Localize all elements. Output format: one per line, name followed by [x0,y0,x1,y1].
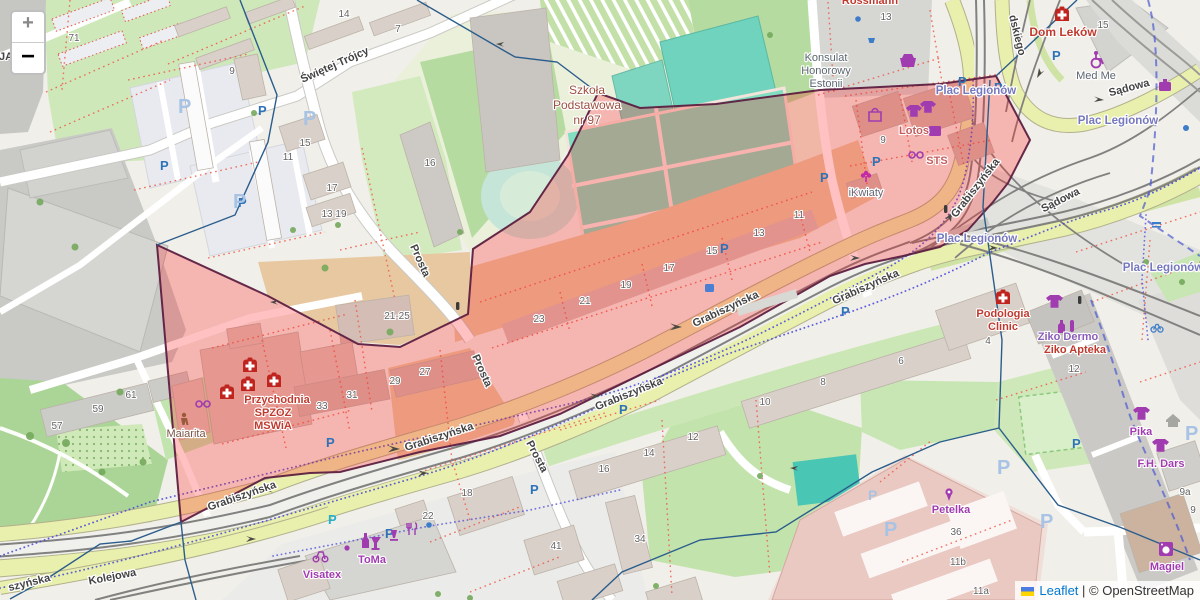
svg-text:F.H. Dars: F.H. Dars [1137,458,1184,470]
svg-text:P: P [1185,423,1198,445]
svg-text:Med Me: Med Me [1076,70,1116,82]
svg-text:Ziko Dermo: Ziko Dermo [1038,331,1099,343]
svg-text:Pika: Pika [1130,426,1154,438]
svg-text:P: P [820,170,829,185]
svg-text:13 19: 13 19 [321,209,346,220]
svg-text:Clinic: Clinic [988,321,1018,333]
svg-text:Magiel: Magiel [1150,561,1184,573]
svg-text:27: 27 [419,367,431,378]
svg-text:15: 15 [1097,20,1109,31]
svg-text:11: 11 [283,152,294,163]
svg-text:P: P [619,402,628,417]
svg-text:MSWiA: MSWiA [254,420,292,432]
svg-text:P: P [872,154,881,169]
svg-text:SPZOZ: SPZOZ [255,407,292,419]
svg-text:P: P [303,108,316,130]
svg-text:P: P [1052,48,1061,63]
svg-text:P: P [178,96,191,118]
svg-text:22: 22 [422,511,434,522]
svg-text:iKwiaty: iKwiaty [849,187,884,199]
svg-text:P: P [258,103,267,118]
svg-text:7: 7 [395,24,401,35]
svg-text:36: 36 [950,527,962,538]
svg-text:33: 33 [316,401,328,412]
svg-text:11b: 11b [950,557,966,568]
svg-text:P: P [720,241,729,256]
svg-text:Plac Legionów: Plac Legionów [1078,115,1159,127]
svg-text:Estonii: Estonii [809,78,842,90]
svg-text:23: 23 [533,314,545,325]
svg-text:11a: 11a [973,586,989,597]
svg-text:29: 29 [389,376,401,387]
svg-text:17: 17 [326,183,338,194]
svg-text:16: 16 [424,158,436,169]
svg-text:59: 59 [92,404,104,415]
svg-text:9: 9 [229,66,235,77]
svg-text:17: 17 [663,263,675,274]
svg-text:61: 61 [125,390,137,401]
svg-text:nr 97: nr 97 [573,113,601,127]
svg-text:P: P [1040,511,1053,533]
svg-text:P: P [160,158,169,173]
svg-text:57: 57 [51,421,63,432]
svg-text:P: P [530,482,539,497]
svg-text:Lotos: Lotos [899,125,929,137]
svg-text:Plac Legionów: Plac Legionów [1123,262,1200,274]
svg-text:Konsulat: Konsulat [805,52,848,64]
svg-text:9a: 9a [1179,487,1191,498]
svg-text:Podstawowa: Podstawowa [553,98,621,112]
svg-text:6: 6 [898,356,904,367]
svg-text:71: 71 [68,33,80,44]
svg-text:9: 9 [1190,505,1196,516]
svg-text:13: 13 [880,12,892,23]
svg-text:21: 21 [579,296,591,307]
svg-text:9: 9 [880,135,886,146]
svg-text:P: P [868,487,877,503]
svg-text:Dom Leków: Dom Leków [1029,25,1097,39]
svg-text:Plac Legionów: Plac Legionów [937,233,1018,245]
svg-text:P: P [328,512,337,527]
svg-text:15: 15 [706,246,718,257]
svg-text:14: 14 [338,9,350,20]
svg-text:14: 14 [643,448,655,459]
svg-text:Ziko Apteka: Ziko Apteka [1044,344,1107,356]
svg-text:P: P [326,435,335,450]
svg-text:Podologia: Podologia [976,308,1030,320]
svg-text:P: P [1072,436,1081,451]
svg-text:10: 10 [759,397,771,408]
svg-text:Plac Legionów: Plac Legionów [936,85,1017,97]
svg-text:12: 12 [687,432,699,443]
svg-text:P: P [233,191,246,213]
svg-text:P: P [884,519,897,541]
svg-text:Rossmann: Rossmann [842,0,899,7]
svg-text:ToMa: ToMa [358,554,387,566]
svg-text:STS: STS [926,155,947,167]
svg-text:41: 41 [550,541,562,552]
svg-text:21-25: 21-25 [384,311,410,322]
svg-text:Honorowy: Honorowy [801,65,851,77]
svg-text:8: 8 [820,377,826,388]
svg-text:12: 12 [1068,364,1080,375]
svg-text:Przychodnia: Przychodnia [244,394,310,406]
svg-text:Maiarita: Maiarita [166,428,206,440]
svg-text:13: 13 [753,228,765,239]
svg-text:P: P [997,457,1010,479]
svg-text:15: 15 [299,138,311,149]
svg-text:Szkoła: Szkoła [569,83,605,97]
svg-text:34: 34 [634,534,646,545]
svg-text:11: 11 [794,210,805,221]
svg-text:Petelka: Petelka [932,504,971,516]
svg-text:16: 16 [598,464,610,475]
svg-text:P: P [841,304,850,319]
svg-text:18: 18 [461,488,473,499]
svg-text:Visatex: Visatex [303,569,342,581]
svg-text:31: 31 [346,390,358,401]
svg-text:19: 19 [620,280,632,291]
svg-text:4: 4 [985,336,991,347]
